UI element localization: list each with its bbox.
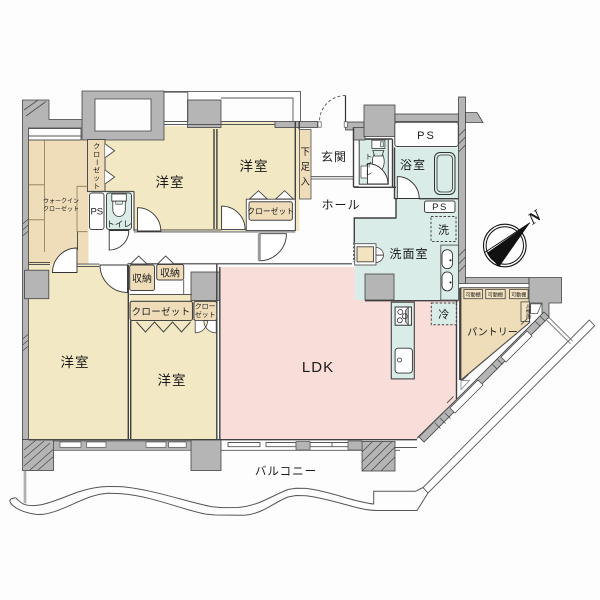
svg-text:洗面室: 洗面室	[389, 246, 428, 261]
svg-text:可動棚: 可動棚	[525, 304, 532, 319]
svg-text:ウォークイン: ウォークイン	[43, 197, 79, 205]
svg-text:可動棚: 可動棚	[466, 292, 481, 299]
svg-text:ト: ト	[365, 154, 372, 161]
svg-text:ホール: ホール	[321, 198, 360, 212]
svg-text:ッ: ッ	[93, 176, 100, 183]
svg-text:バルコニー: バルコニー	[255, 465, 317, 478]
svg-text:クローゼット: クローゼット	[247, 206, 294, 216]
svg-text:可動棚: 可動棚	[488, 292, 503, 299]
svg-text:PS: PS	[432, 202, 448, 213]
svg-text:浴室: 浴室	[400, 157, 426, 172]
svg-text:クローゼット: クローゼット	[132, 306, 191, 318]
svg-text:ク: ク	[93, 143, 100, 151]
svg-text:冷: 冷	[438, 308, 449, 321]
svg-text:ト: ト	[93, 184, 100, 191]
svg-text:洋室: 洋室	[61, 354, 90, 370]
svg-text:ゼ: ゼ	[93, 166, 100, 175]
svg-text:クロー: クロー	[195, 303, 216, 311]
svg-text:玄関: 玄関	[321, 149, 347, 164]
svg-text:収納: 収納	[160, 267, 180, 280]
svg-text:洗: 洗	[438, 224, 449, 237]
svg-text:PS: PS	[90, 207, 103, 218]
svg-text:PS: PS	[417, 130, 436, 142]
svg-text:洋室: 洋室	[156, 174, 185, 190]
svg-text:トイレ: トイレ	[106, 219, 132, 229]
svg-text:足: 足	[301, 162, 311, 173]
svg-text:ロ: ロ	[93, 152, 100, 159]
svg-text:イ: イ	[365, 162, 372, 169]
svg-text:クローゼット: クローゼット	[43, 205, 79, 213]
svg-text:収納: 収納	[132, 272, 152, 285]
svg-text:洋室: 洋室	[158, 372, 187, 388]
svg-text:パントリー: パントリー	[467, 327, 518, 339]
svg-text:洋室: 洋室	[240, 158, 269, 174]
svg-text:レ: レ	[365, 170, 372, 177]
svg-text:入: 入	[301, 177, 311, 188]
svg-text:LDK: LDK	[302, 359, 334, 376]
svg-text:ー: ー	[92, 159, 99, 166]
svg-text:下: 下	[301, 147, 311, 158]
svg-text:可動棚: 可動棚	[511, 292, 526, 299]
svg-text:ゼット: ゼット	[195, 310, 216, 319]
